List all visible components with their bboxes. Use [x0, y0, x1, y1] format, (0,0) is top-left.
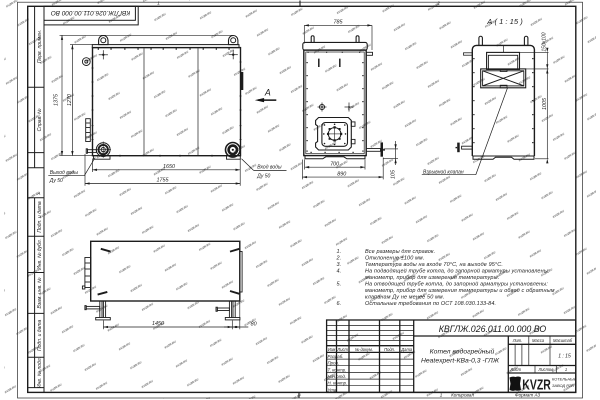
- svg-text:Дата: Дата: [400, 347, 413, 352]
- svg-text:Пров.: Пров.: [328, 361, 340, 366]
- svg-text:1755: 1755: [157, 178, 170, 184]
- svg-text:Подп. и дата: Подп. и дата: [37, 201, 43, 233]
- svg-text:Остальные требования по ОСТ 10: Остальные требования по ОСТ 108.030.133-…: [365, 301, 496, 307]
- svg-text:80: 80: [251, 321, 257, 327]
- svg-text:1: 1: [565, 367, 567, 372]
- svg-text:105: 105: [390, 169, 396, 179]
- svg-text:1005: 1005: [542, 97, 548, 110]
- svg-text:1: 1: [157, 1, 160, 6]
- svg-text:Взрывной клапан: Взрывной клапан: [423, 168, 464, 175]
- svg-text:785: 785: [334, 20, 344, 26]
- svg-text:Подп.: Подп.: [384, 347, 395, 352]
- svg-text:Ду 50: Ду 50: [256, 174, 270, 180]
- svg-text:КВГЛЖ.026.011.00.000 ВО: КВГЛЖ.026.011.00.000 ВО: [51, 9, 130, 16]
- svg-text:Инв. № дубл.: Инв. № дубл.: [37, 239, 43, 270]
- svg-text:№ докум.: № докум.: [355, 347, 373, 352]
- svg-text:манометр, прибор для измерения: манометр, прибор для измерения температу…: [365, 275, 499, 281]
- svg-text:КОТЕЛЬНЫЙ: КОТЕЛЬНЫЙ: [552, 377, 577, 382]
- svg-text:клапанам Ду не менее 50 мм.: клапанам Ду не менее 50 мм.: [365, 294, 444, 300]
- svg-text:Разраб.: Разраб.: [328, 354, 344, 359]
- svg-text:1375: 1375: [54, 93, 60, 106]
- svg-text:манометр, прибор для измерения: манометр, прибор для измерения температу…: [365, 288, 555, 294]
- svg-text:А: А: [264, 88, 271, 98]
- svg-text:Изм: Изм: [328, 347, 336, 352]
- svg-text:Утв.: Утв.: [328, 387, 338, 392]
- svg-text:1650: 1650: [163, 164, 175, 170]
- svg-text:Лист: Лист: [336, 347, 348, 352]
- svg-text:890: 890: [337, 171, 346, 177]
- svg-text:Перв. примен.: Перв. примен.: [37, 30, 43, 63]
- svg-text:Взам. инв. №: Взам. инв. №: [37, 277, 43, 309]
- svg-text:Ду 50: Ду 50: [49, 178, 63, 184]
- svg-text:ЗАВОД РЭП: ЗАВОД РЭП: [552, 383, 575, 388]
- svg-text:Н. контр.: Н. контр.: [328, 381, 348, 386]
- svg-text:Масса: Масса: [532, 338, 545, 343]
- svg-text:Температура воды на входе 70°С: Температура воды на входе 70°С, на выход…: [365, 262, 503, 268]
- svg-text:2: 2: [436, 1, 440, 6]
- svg-text:Лит.: Лит.: [512, 338, 523, 343]
- svg-text:1.: 1.: [337, 249, 342, 255]
- svg-text:6.: 6.: [337, 301, 342, 307]
- svg-text:3.: 3.: [337, 262, 342, 268]
- svg-text:Копировал: Копировал: [451, 393, 474, 398]
- svg-text:700: 700: [330, 161, 339, 167]
- svg-text:На подводящей трубе котла, до: На подводящей трубе котла, до запорной а…: [365, 267, 550, 274]
- svg-text:Выход воды: Выход воды: [50, 170, 78, 176]
- svg-text:Лист: Лист: [510, 367, 522, 372]
- svg-text:Справ. №: Справ. №: [37, 108, 43, 131]
- svg-text:2.: 2.: [336, 255, 342, 261]
- svg-text:Вход воды: Вход воды: [257, 164, 282, 170]
- svg-text:1: 1: [440, 393, 443, 398]
- svg-text:1450: 1450: [152, 321, 164, 327]
- svg-text:Котел водогрейный: Котел водогрейный: [430, 348, 495, 356]
- svg-text:5.: 5.: [337, 281, 342, 287]
- svg-text:Все размеры для справок.: Все размеры для справок.: [365, 249, 435, 255]
- svg-text:Листов: Листов: [537, 367, 554, 372]
- svg-text:4.: 4.: [337, 268, 342, 274]
- svg-text:KVZR: KVZR: [522, 377, 551, 393]
- svg-text:1 : 15: 1 : 15: [558, 353, 571, 359]
- svg-text:На отводящей трубе котла, до з: На отводящей трубе котла, до запорной ар…: [365, 280, 548, 287]
- svg-text:150х100: 150х100: [542, 32, 548, 51]
- svg-text:Инв. № подл.: Инв. № подл.: [37, 357, 43, 388]
- svg-text:А: А: [37, 191, 41, 196]
- svg-text:Подп. и дата: Подп. и дата: [37, 320, 43, 352]
- svg-text:Нач.отд.: Нач.отд.: [328, 374, 347, 379]
- svg-text:Масштаб: Масштаб: [553, 338, 573, 343]
- svg-text:Т. контр.: Т. контр.: [328, 367, 347, 372]
- svg-text:Отклонение ±100 мм.: Отклонение ±100 мм.: [365, 255, 424, 261]
- svg-text:Формат А3: Формат А3: [515, 393, 541, 398]
- svg-text:А ( 1 : 15 ): А ( 1 : 15 ): [486, 17, 523, 26]
- svg-text:1270: 1270: [67, 94, 73, 106]
- svg-text:Heatexpert-КВа-0,3 -ГЛЖ: Heatexpert-КВа-0,3 -ГЛЖ: [421, 357, 500, 364]
- svg-text:КВГЛЖ.026.011.00.000 ВО: КВГЛЖ.026.011.00.000 ВО: [439, 324, 547, 334]
